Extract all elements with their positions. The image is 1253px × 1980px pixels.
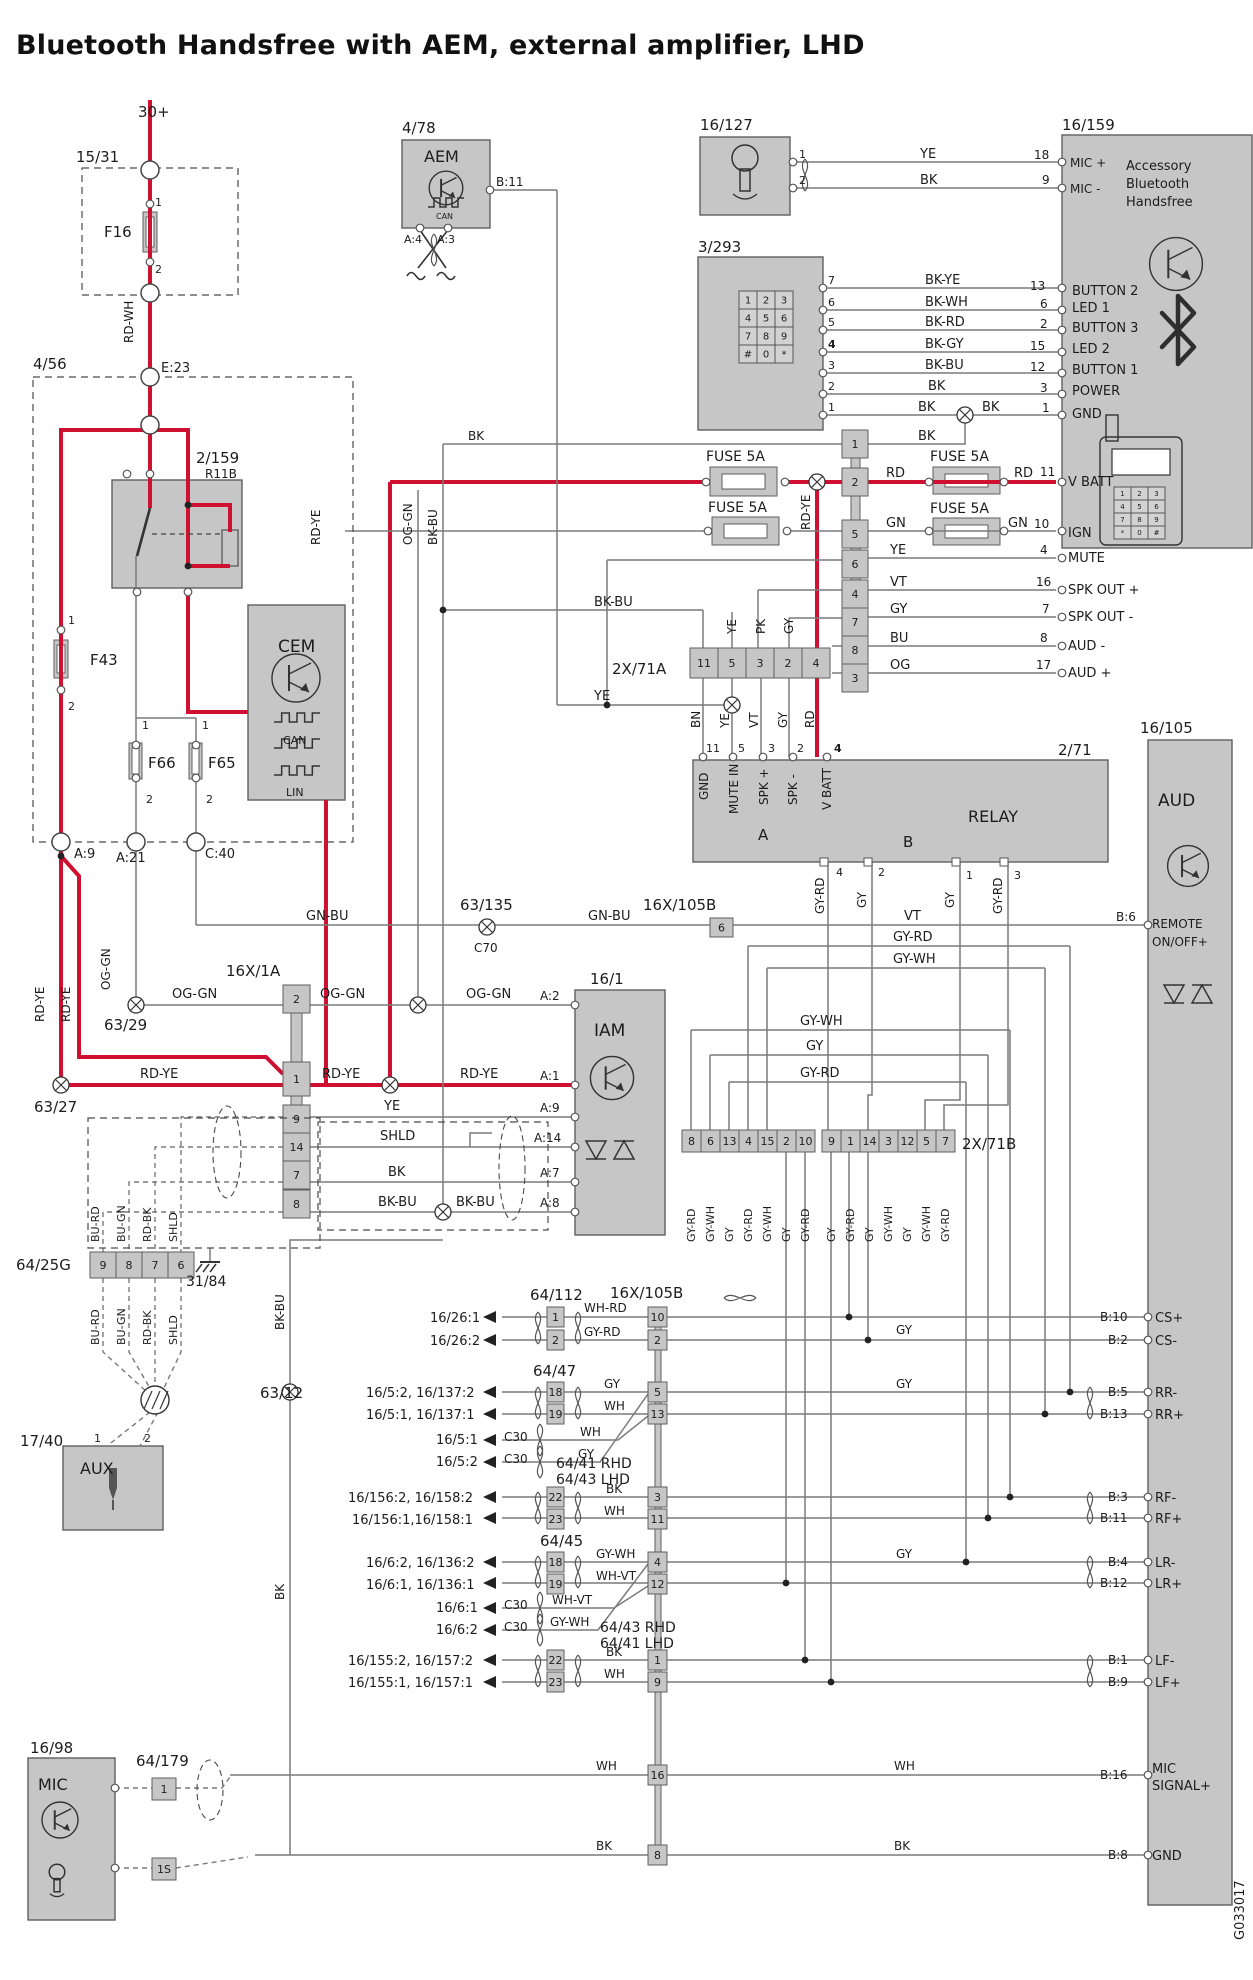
pin-43 [571, 1113, 579, 1121]
connector-cell-label-7-60: 7 [152, 1259, 159, 1272]
keypad-3-293-grid-key-label-5: 5 [763, 314, 769, 325]
label-gy-rd-185: GY-RD [742, 1209, 755, 1242]
label-ye-34: YE [919, 147, 936, 162]
phone-keypad-16-159-key-label-1: 1 [1120, 490, 1124, 498]
label-16-159-38: 16/159 [1062, 116, 1115, 134]
label-rf-274: RF+ [1155, 1512, 1182, 1527]
label-63-29-152: 63/29 [104, 1016, 147, 1034]
label-gy-184: GY [723, 1227, 736, 1242]
keypad-3-293-grid-key-label-7: 7 [745, 332, 751, 343]
label-spk-out-96: SPK OUT - [1068, 610, 1134, 625]
label-gy-rd-176: GY-RD [893, 930, 933, 945]
connector-cell-label-12-41: 12 [651, 1578, 665, 1591]
label-gy-262: GY [896, 1547, 913, 1561]
label-11-115: 11 [706, 742, 720, 755]
label-16-127-31: 16/127 [700, 116, 753, 134]
label-1-131: 1 [966, 869, 973, 882]
junction-dot-12 [828, 1679, 835, 1686]
pin-54 [1144, 1558, 1152, 1566]
label-gy-rd-133: GY-RD [813, 877, 827, 914]
label-1-17: 1 [202, 719, 209, 732]
label-b-2-265: B:2 [1108, 1333, 1128, 1347]
label-5-47: 5 [828, 316, 835, 329]
connector-cell-label-8-59: 8 [126, 1259, 133, 1272]
label-gn-84: GN [1008, 516, 1028, 531]
junction-dot-7 [1007, 1494, 1014, 1501]
pin-37 [729, 753, 737, 761]
label-remote-146: REMOTE [1152, 917, 1203, 931]
label-b-11-30: B:11 [496, 175, 524, 189]
label-og-gn-153: OG-GN [172, 987, 217, 1002]
label-bk-bu-56: BK-BU [925, 358, 964, 373]
label-fuse-5a-77: FUSE 5A [930, 449, 989, 465]
label-cs-264: CS+ [1155, 1311, 1183, 1326]
label-gy-107: GY [782, 617, 796, 634]
label-bk-bu-172: BK-BU [456, 1195, 495, 1210]
connector-cell-label-3-38: 3 [654, 1491, 661, 1504]
label-lin-21: LIN [286, 786, 304, 799]
pin-47 [1144, 921, 1152, 929]
pin-58 [1144, 1771, 1152, 1779]
label-4-89: 4 [1040, 543, 1048, 557]
junction-dot-8 [985, 1515, 992, 1522]
label-3-49: 3 [828, 359, 835, 372]
label-mute-in-125: MUTE IN [727, 764, 741, 814]
label-2-33: 2 [799, 174, 806, 187]
label-led-1-69: LED 1 [1072, 301, 1110, 316]
label-16-5-2-16-137-2-205: 16/5:2, 16/137:2 [366, 1386, 475, 1401]
connector-cell-label-9-27: 9 [828, 1135, 835, 1148]
label-gy-261: GY [896, 1377, 913, 1391]
label-64-179-243: 64/179 [136, 1752, 189, 1770]
label-16-5-1-16-137-1-206: 16/5:1, 16/137:1 [366, 1408, 475, 1423]
label-e-23-6: E:23 [161, 361, 190, 376]
wire-arrow-icon-9 [483, 1577, 496, 1589]
connector-cell-label-18-52: 18 [549, 1556, 563, 1569]
label-2-4: 2 [155, 263, 162, 276]
connector-cell-label-14-16: 14 [290, 1141, 304, 1154]
shield-ellipse-0 [213, 1106, 241, 1198]
label-wh-237: WH [596, 1759, 617, 1773]
pin-square-3 [1000, 858, 1008, 866]
label-can-27: CAN [436, 212, 453, 221]
label-16x-105b-143: 16X/105B [643, 896, 716, 914]
phone-keypad-16-159-key-label-5: 5 [1137, 503, 1141, 511]
label-f16-2: F16 [104, 223, 132, 241]
label-wh-rd-198: WH-RD [584, 1301, 627, 1315]
label-15-31-1: 15/31 [76, 148, 119, 166]
connector-cell-label-6-3: 6 [852, 558, 859, 571]
label-bu-gn-253: BU-GN [115, 1308, 128, 1345]
pin-48 [1144, 1313, 1152, 1321]
connector-cell-label-4-12: 4 [813, 657, 820, 670]
label-31-84-244: 31/84 [186, 1274, 226, 1290]
label-bk-rd-54: BK-RD [925, 315, 965, 330]
connector-cell-label-8-18: 8 [293, 1198, 300, 1211]
label-mute-90: MUTE [1068, 551, 1105, 566]
label-gy-wh-194: GY-WH [920, 1206, 933, 1242]
pin-0 [789, 158, 797, 166]
label-button-2-68: BUTTON 2 [1072, 284, 1138, 299]
label-16-155-1-16-157-1-236: 16/155:1, 16/157:1 [348, 1676, 473, 1691]
wire-d-144 [176, 1777, 230, 1788]
label-pk-106: PK [754, 618, 768, 634]
pin-26 [444, 224, 452, 232]
connector-cell-label-2-1: 2 [852, 476, 859, 489]
pin-61 [146, 470, 154, 478]
label-mic-39: MIC + [1070, 156, 1106, 170]
label-og-gn-155: OG-GN [320, 987, 365, 1002]
junction-dot-3 [440, 607, 447, 614]
connector-cell-label-6-19: 6 [718, 922, 725, 935]
label-7-45: 7 [828, 274, 835, 287]
label-1-11: 1 [68, 614, 75, 627]
connector-cell-label-3-10: 3 [757, 657, 764, 670]
label-1-15: 1 [142, 719, 149, 732]
label-bu-97: BU [890, 631, 908, 646]
label-2-130: 2 [878, 866, 885, 879]
phone-keypad-16-159-key-label-*: * [1121, 529, 1125, 537]
label-a-2-157: A:2 [540, 989, 560, 1003]
keypad-3-293-grid-key-label-3: 3 [781, 296, 787, 307]
pin-69 [57, 686, 65, 694]
label-bk-58: BK [918, 400, 936, 415]
label-15-64: 15 [1030, 339, 1045, 353]
label-spk-out-93: SPK OUT + [1068, 583, 1139, 598]
label-power-73: POWER [1072, 384, 1120, 399]
label-11-81: 11 [1040, 465, 1055, 479]
pin-9 [1058, 158, 1066, 166]
pin-14 [1058, 348, 1066, 356]
fuse-window-f66 [132, 748, 139, 774]
pin-71 [132, 774, 140, 782]
pin-52 [1144, 1493, 1152, 1501]
phone-keypad-16-159-key-label-9: 9 [1154, 516, 1158, 524]
pin-10 [1058, 184, 1066, 192]
label-rd-ye-158: RD-YE [33, 987, 47, 1022]
label-16x-105b-196: 16X/105B [610, 1284, 683, 1302]
label-rd-ye-159: RD-YE [59, 987, 73, 1022]
label-16-155-2-16-157-2-235: 16/155:2, 16/157:2 [348, 1654, 473, 1669]
label-17-101: 17 [1036, 658, 1051, 672]
pin-25 [416, 224, 424, 232]
label-bk-bu-245: BK-BU [273, 1294, 287, 1330]
label-mic-284: MIC [1152, 1762, 1176, 1777]
label-2-50: 2 [828, 380, 835, 393]
phone-keypad-16-159-key-label-2: 2 [1137, 490, 1141, 498]
pin-51 [1144, 1410, 1152, 1418]
label-16-26-2-201: 16/26:2 [430, 1334, 480, 1349]
box-relay-coil [222, 530, 238, 566]
pin-45 [571, 1178, 579, 1186]
pin-23 [1058, 642, 1066, 650]
label-vt-91: VT [890, 575, 907, 590]
label-a-122: A [758, 826, 769, 844]
pin-72 [192, 741, 200, 749]
label-2-16: 2 [146, 793, 153, 806]
label-a-21-23: A:21 [116, 851, 146, 866]
connector-cell-label-8-45: 8 [654, 1849, 661, 1862]
label-aud-138: AUD [1158, 791, 1195, 811]
wire-arrow-icon-13 [483, 1676, 496, 1688]
wire-r-5 [150, 430, 188, 478]
connector-cell-label-7-17: 7 [293, 1169, 300, 1182]
connector-cell-label-6-61: 6 [178, 1259, 185, 1272]
connector-cell-label-13-22: 13 [723, 1135, 737, 1148]
label-v-batt-128: V BATT [820, 767, 834, 810]
label-b-12-277: B:12 [1100, 1576, 1128, 1590]
label-1-258: 1 [94, 1432, 101, 1445]
box-microphone-16-127 [700, 137, 790, 215]
wire-arrow-icon-6 [483, 1491, 496, 1503]
pin-35 [1000, 527, 1008, 535]
connector-cell-label-22-54: 22 [549, 1654, 563, 1667]
label-handsfree-43: Handsfree [1126, 195, 1193, 210]
label-a-9-22: A:9 [74, 847, 95, 862]
label-2-259: 2 [144, 1432, 151, 1445]
label-16-6-1-16-136-1-224: 16/6:1, 16/136:1 [366, 1578, 475, 1593]
label-rd-ye-162: RD-YE [322, 1067, 360, 1082]
connector-cell-label-15-24: 15 [761, 1135, 775, 1148]
label-signal-285: SIGNAL+ [1152, 1779, 1211, 1794]
label-a-4-28: A:4 [404, 233, 422, 246]
label-bk-239: BK [596, 1839, 613, 1853]
label-g033017-288: G033017 [1233, 1880, 1248, 1940]
pin-60 [123, 470, 131, 478]
label-6-62: 6 [1040, 297, 1048, 311]
connector-cell-label-23-51: 23 [549, 1513, 563, 1526]
connector-cell-label-16-44: 16 [651, 1769, 665, 1782]
label-bk-bu-171: BK-BU [378, 1195, 417, 1210]
label-gy-wh-178: GY-WH [800, 1014, 843, 1029]
label-4-56-7: 4/56 [33, 355, 67, 373]
label-16-6-2-16-136-2-223: 16/6:2, 16/136:2 [366, 1556, 475, 1571]
label-2-159-8: 2/159 [196, 449, 239, 467]
label-rd-79: RD [886, 466, 905, 481]
label-b-13-269: B:13 [1100, 1407, 1128, 1421]
label-f66-13: F66 [148, 754, 176, 772]
label-gy-189: GY [825, 1227, 838, 1242]
label-bk-57: BK [928, 379, 946, 394]
label-gy-rd-188: GY-RD [799, 1209, 812, 1242]
wire-g-25 [868, 415, 965, 444]
pin-square-2 [952, 858, 960, 866]
pin-42 [571, 1081, 579, 1089]
label-rd-ye-163: RD-YE [460, 1067, 498, 1082]
label-ye-105: YE [725, 619, 739, 635]
label-3-117: 3 [768, 742, 775, 755]
label-fuse-5a-76: FUSE 5A [708, 500, 767, 516]
pin-27 [486, 186, 494, 194]
pin-13 [1058, 326, 1066, 334]
wire-arrow-icon-8 [483, 1556, 496, 1568]
wire-arrow-icon-10 [483, 1602, 496, 1614]
keypad-3-293-grid-key-label-4: 4 [745, 314, 751, 325]
pin-square-1 [864, 858, 872, 866]
connector-cell-label-8-6: 8 [852, 644, 859, 657]
phone-keypad-16-159-key-label-4: 4 [1120, 503, 1125, 511]
label-wh-238: WH [894, 1759, 915, 1773]
label-vt-112: VT [747, 712, 761, 728]
label-ye-88: YE [889, 543, 906, 558]
label-gy-wh-183: GY-WH [704, 1206, 717, 1242]
label-f43-10: F43 [90, 651, 118, 669]
connector-cell-label-2-25: 2 [783, 1135, 790, 1148]
label-shld-255: SHLD [167, 1315, 180, 1345]
label-bu-gn-249: BU-GN [115, 1205, 128, 1242]
pin-11 [1058, 284, 1066, 292]
label-lf-280: LF- [1155, 1654, 1175, 1669]
label-b-123: B [903, 833, 913, 851]
label-a-1-164: A:1 [540, 1069, 560, 1083]
label-rf-272: RF- [1155, 1491, 1177, 1506]
wire-break-icon-0 [407, 273, 425, 280]
connector-cell-label-1-0: 1 [852, 438, 859, 451]
label-gy-rd-182: GY-RD [685, 1209, 698, 1242]
label-gy-wh-192: GY-WH [882, 1206, 895, 1242]
pin-68 [57, 626, 65, 634]
label-aem-26: AEM [424, 147, 459, 166]
label-aux-257: AUX [80, 1459, 114, 1478]
pin-34 [925, 527, 933, 535]
junction-node-3 [141, 416, 159, 434]
wire-d-133 [181, 1117, 283, 1252]
label-1-3: 1 [155, 196, 162, 209]
fuse-window-fuse-5a-vbatt-left [722, 474, 765, 489]
connector-cell-label-22-50: 22 [549, 1491, 563, 1504]
label-og-gn-149: OG-GN [401, 503, 415, 545]
label-cem-19: CEM [278, 637, 315, 657]
label-16-156-2-16-158-2-218: 16/156:2, 16/158:2 [348, 1491, 473, 1506]
connector-cell-label-10-26: 10 [799, 1135, 813, 1148]
pin-33 [1000, 478, 1008, 486]
pin-57 [1144, 1678, 1152, 1686]
junction-dot-6 [1042, 1411, 1049, 1418]
pin-17 [1058, 411, 1066, 419]
label-wh-234: WH [604, 1667, 625, 1681]
ground-icon-hatch-0-2 [210, 1264, 216, 1272]
label-b-4-275: B:4 [1108, 1555, 1128, 1569]
junction-node-2 [141, 368, 159, 386]
connector-cell-label-5-2: 5 [852, 528, 859, 541]
label-ye-111: YE [718, 713, 732, 729]
connector-cell-label-12-31: 12 [901, 1135, 915, 1148]
label-2-18: 2 [206, 793, 213, 806]
label-30-0: 30+ [138, 103, 170, 121]
schematic-page: Bluetooth Handsfree with AEM, external a… [0, 0, 1253, 1980]
fuse-window-fuse-5a-ign-left [724, 524, 767, 538]
junction-dot-1 [185, 563, 192, 570]
connector-cell-label-5-9: 5 [729, 657, 736, 670]
phone-keypad-16-159-key-label-#: # [1154, 529, 1160, 537]
connector-cell-label-2-35: 2 [654, 1334, 661, 1347]
label-gy-wh-230: GY-WH [550, 1615, 589, 1629]
label-b-8-286: B:8 [1108, 1848, 1128, 1862]
label-accessory-41: Accessory [1126, 159, 1192, 174]
connector-cell-label-1-56: 1 [161, 1783, 168, 1796]
label-4-78-25: 4/78 [402, 119, 436, 137]
label-b-3-271: B:3 [1108, 1490, 1128, 1504]
junction-dot-2 [58, 853, 65, 860]
label-bu-rd-252: BU-RD [89, 1309, 102, 1345]
junction-dot-14 [865, 1337, 872, 1344]
label-16-1-174: 16/1 [590, 970, 624, 988]
label-16-6-2-228: 16/6:2 [436, 1623, 478, 1638]
connector-cell-label-7-5: 7 [852, 616, 859, 629]
label-rd-114: RD [803, 710, 817, 728]
connector-cell-label-13-37: 13 [651, 1408, 665, 1421]
label-mic-40: MIC - [1070, 182, 1100, 196]
label-shld-251: SHLD [167, 1212, 180, 1242]
label-2-12: 2 [68, 700, 75, 713]
wire-arrow-icon-2 [483, 1386, 496, 1398]
label-bk-233: BK [606, 1645, 623, 1659]
label-bk-240: BK [894, 1839, 911, 1853]
label-og-gn-151: OG-GN [99, 948, 113, 990]
connector-cell-label-11-8: 11 [697, 657, 711, 670]
pin-41 [571, 1001, 579, 1009]
label-bk-bu-103: BK-BU [594, 595, 633, 610]
label-16-105-137: 16/105 [1140, 719, 1193, 737]
label-bk-169: BK [388, 1165, 406, 1180]
label-gy-179: GY [806, 1039, 823, 1054]
keypad-3-293-grid-key-label-*: * [782, 350, 787, 361]
wire-g-121 [290, 1240, 443, 1855]
pin-55 [1144, 1579, 1152, 1587]
pin-53 [1144, 1514, 1152, 1522]
label-gy-wh-221: GY-WH [596, 1547, 635, 1561]
label-r11b-9: R11B [205, 467, 237, 481]
keypad-3-293-grid-key-label-9: 9 [781, 332, 787, 343]
label-b-16-283: B:16 [1100, 1768, 1128, 1782]
label-64-47-202: 64/47 [533, 1362, 576, 1380]
label-gy-260: GY [896, 1323, 913, 1337]
connector-cell-label-1-28: 1 [847, 1135, 854, 1148]
label-gy-rd-180: GY-RD [800, 1066, 840, 1081]
label-a-7-170: A:7 [540, 1166, 560, 1180]
label-rd-ye-161: RD-YE [140, 1067, 178, 1082]
label-bk-246: BK [273, 1583, 287, 1600]
label-aud-102: AUD + [1068, 666, 1111, 681]
connector-cell-label-8-20: 8 [688, 1135, 695, 1148]
pin-3 [819, 306, 827, 314]
label-64-45-220: 64/45 [540, 1532, 583, 1550]
pin-50 [1144, 1388, 1152, 1396]
label-gy-187: GY [780, 1227, 793, 1242]
label-on-off-147: ON/OFF+ [1152, 935, 1208, 949]
pin-56 [1144, 1656, 1152, 1664]
label-bk-35: BK [920, 173, 938, 188]
wire-r-9 [188, 588, 248, 712]
label-wh-vt-222: WH-VT [596, 1569, 637, 1583]
label-5-116: 5 [738, 742, 745, 755]
pin-19 [1058, 527, 1066, 535]
label-8-98: 8 [1040, 631, 1048, 645]
label-wh-217: WH [604, 1504, 625, 1518]
pin-1 [789, 184, 797, 192]
label-b-10-263: B:10 [1100, 1310, 1128, 1324]
label-fuse-5a-78: FUSE 5A [930, 501, 989, 517]
label-gy-rd-199: GY-RD [584, 1325, 621, 1339]
connector-cell-label-1S-57: 1S [157, 1863, 171, 1876]
label-bk-59: BK [982, 400, 1000, 415]
label-3-132: 3 [1014, 869, 1021, 882]
label-wh-204: WH [604, 1399, 625, 1413]
wire-g-64 [470, 1133, 492, 1147]
label-13-61: 13 [1030, 279, 1045, 293]
label-rd-bk-250: RD-BK [141, 1207, 154, 1242]
label-1-67: 1 [1042, 401, 1050, 415]
